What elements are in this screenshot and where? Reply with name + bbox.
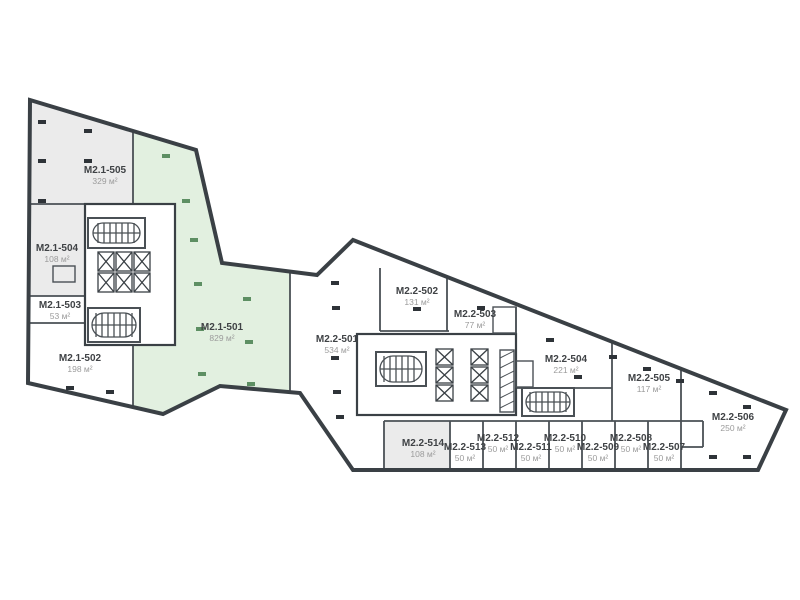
column-green-icon — [162, 154, 170, 158]
column-green-icon — [190, 238, 198, 242]
column-icon — [709, 455, 717, 459]
room-id: M2.1-503 — [39, 300, 82, 311]
column-icon — [743, 455, 751, 459]
column-icon — [574, 375, 582, 379]
room-area: 250 м² — [720, 423, 745, 433]
room-id: M2.2-501 — [316, 334, 359, 345]
room-area: 221 м² — [553, 365, 578, 375]
column-icon — [609, 355, 617, 359]
column-green-icon — [245, 340, 253, 344]
column-icon — [38, 159, 46, 163]
room-area: 50 м² — [521, 453, 542, 463]
room-area: 53 м² — [50, 311, 71, 321]
room-id: M2.2-513 — [444, 442, 487, 453]
column-icon — [332, 306, 340, 310]
column-green-icon — [247, 382, 255, 386]
room-id: M2.1-502 — [59, 353, 102, 364]
room-id: M2.2-505 — [628, 373, 671, 384]
column-green-icon — [243, 297, 251, 301]
room-id: M2.1-504 — [36, 243, 79, 254]
column-icon — [546, 338, 554, 342]
column-icon — [84, 129, 92, 133]
room-area: 77 м² — [465, 320, 486, 330]
room-area: 50 м² — [654, 453, 675, 463]
column-green-icon — [198, 372, 206, 376]
room-area: 329 м² — [92, 176, 117, 186]
room-area: 50 м² — [621, 444, 642, 454]
room-area: 198 м² — [67, 364, 92, 374]
column-icon — [676, 379, 684, 383]
room-area: 108 м² — [44, 254, 69, 264]
column-icon — [336, 415, 344, 419]
room-id: M2.2-503 — [454, 309, 497, 320]
column-green-icon — [194, 282, 202, 286]
room-area: 50 м² — [488, 444, 509, 454]
room-id: M2.1-501 — [201, 322, 244, 333]
room-area: 50 м² — [455, 453, 476, 463]
column-icon — [331, 356, 339, 360]
stairwell-2 — [88, 308, 140, 342]
floor-plan: M2.1-505329 м²M2.1-504108 м²M2.1-50353 м… — [0, 0, 800, 600]
column-icon — [38, 199, 46, 203]
room-area: 829 м² — [209, 333, 234, 343]
room-id: M2.2-504 — [545, 354, 588, 365]
column-icon — [743, 405, 751, 409]
column-icon — [413, 307, 421, 311]
room-area: 108 м² — [410, 449, 435, 459]
room-id: M2.2-502 — [396, 286, 439, 297]
room-area: 534 м² — [324, 345, 349, 355]
room-area: 50 м² — [555, 444, 576, 454]
floor-plan-page: M2.1-505329 м²M2.1-504108 м²M2.1-50353 м… — [0, 0, 800, 600]
room-id: M2.1-505 — [84, 165, 127, 176]
room-id: M2.2-514 — [402, 438, 445, 449]
column-icon — [66, 386, 74, 390]
column-icon — [709, 391, 717, 395]
column-icon — [331, 281, 339, 285]
column-icon — [333, 390, 341, 394]
stairwell-4 — [522, 388, 574, 416]
column-icon — [38, 120, 46, 124]
room-area: 131 м² — [404, 297, 429, 307]
column-green-icon — [182, 199, 190, 203]
room-area: 50 м² — [588, 453, 609, 463]
room-area: 117 м² — [637, 384, 662, 394]
column-icon — [84, 159, 92, 163]
room-id: M2.2-506 — [712, 412, 755, 423]
column-icon — [643, 367, 651, 371]
column-icon — [106, 390, 114, 394]
